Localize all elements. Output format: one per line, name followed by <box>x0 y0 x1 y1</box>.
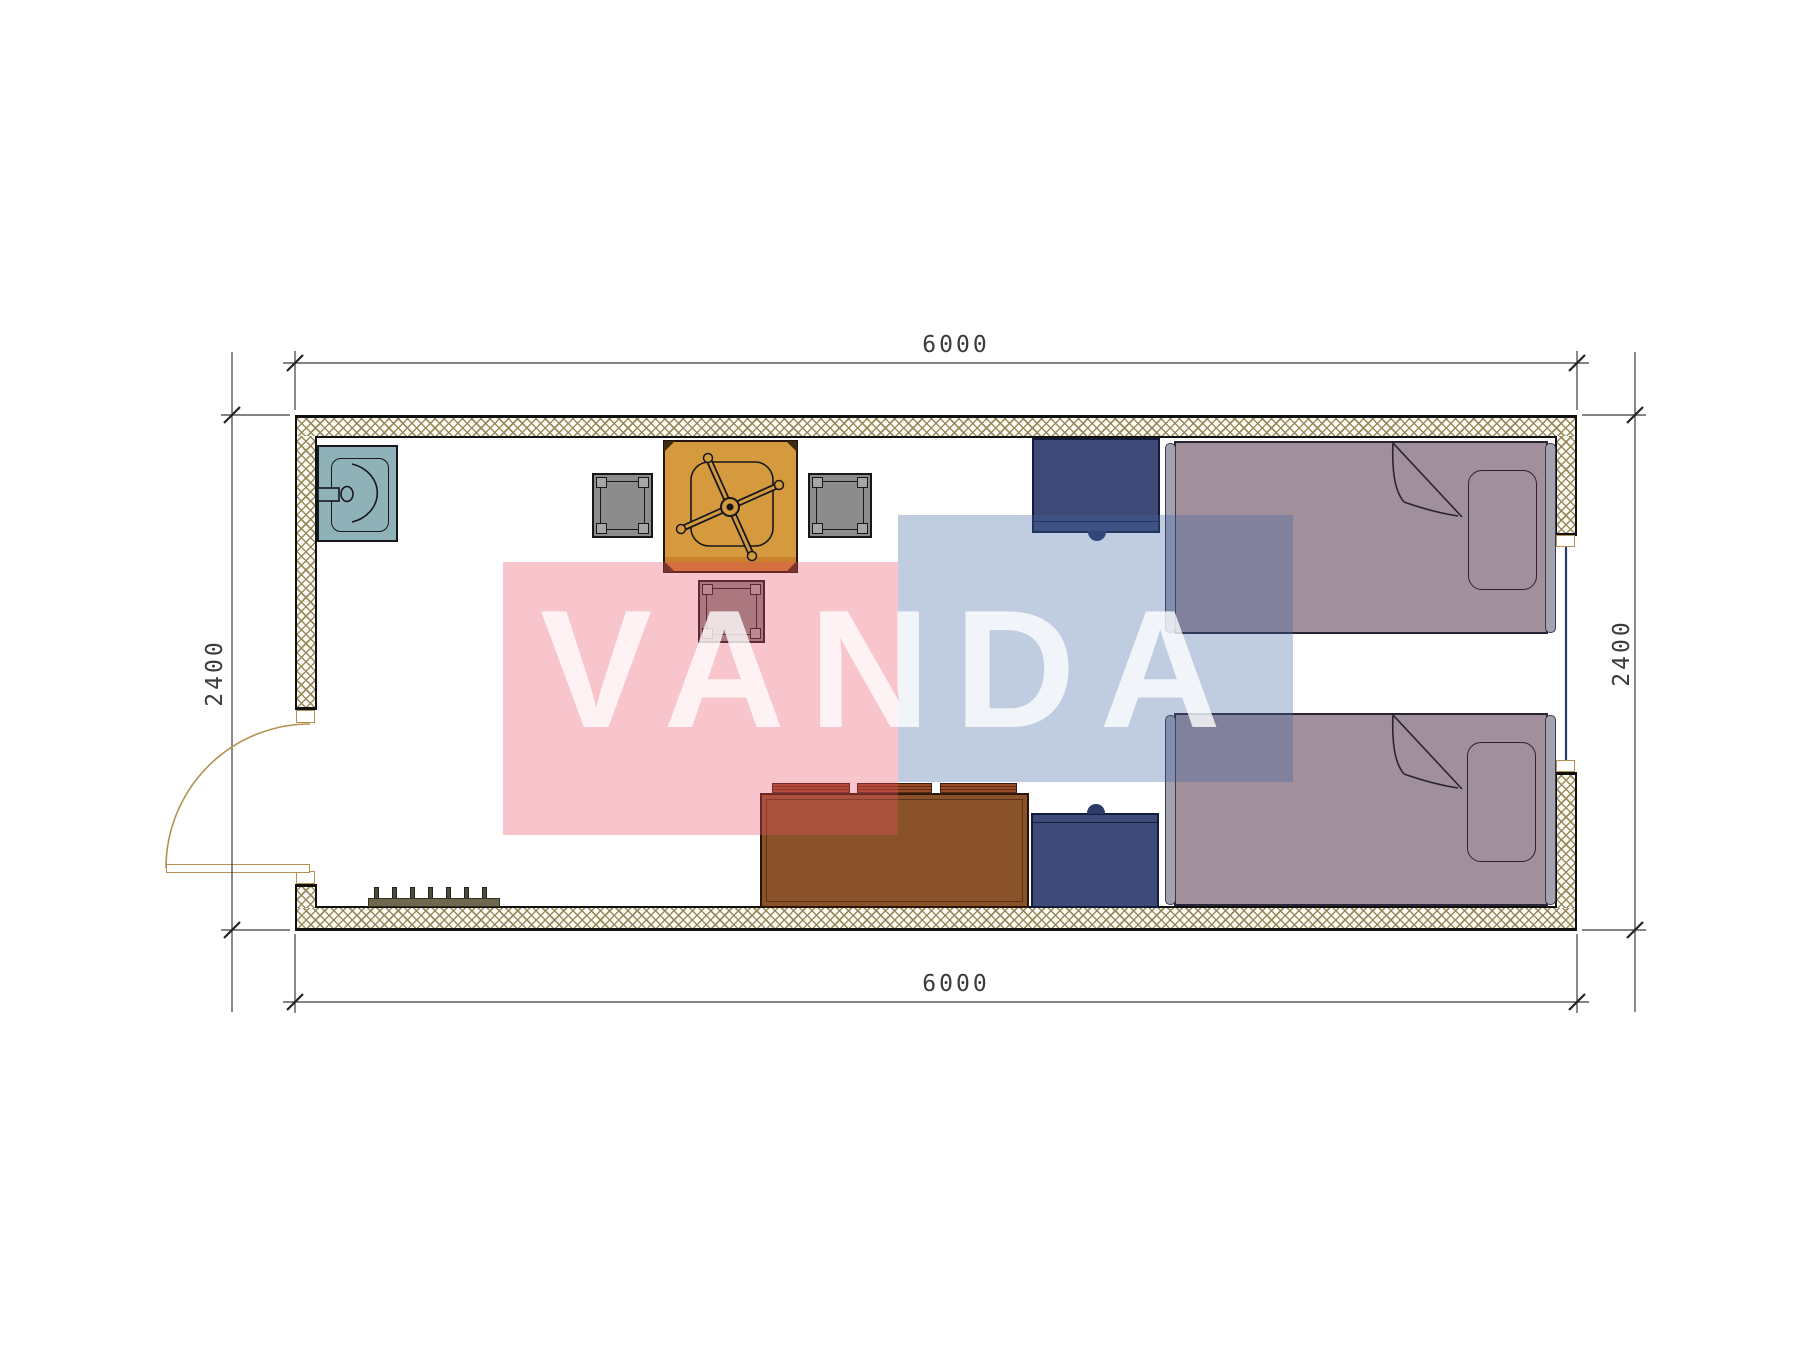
pillow-icon <box>1467 742 1536 862</box>
stool-left <box>592 473 653 538</box>
window-jamb-bottom <box>1556 760 1575 772</box>
nightstand-bottom <box>1031 813 1159 908</box>
coat-hooks-icon <box>368 898 500 907</box>
floor-plan-canvas: 6000 6000 2400 2400 <box>0 0 1800 1350</box>
dimension-right-label: 2400 <box>1609 593 1635 713</box>
bed-bottom-headboard <box>1545 715 1556 905</box>
dimension-bottom-label: 6000 <box>896 971 1016 997</box>
wall-door-stub <box>295 884 317 908</box>
sink-icon <box>317 445 398 542</box>
door-jamb-top <box>296 710 315 723</box>
door-leaf <box>166 864 310 873</box>
pillow-icon <box>1468 470 1537 590</box>
sink-basin <box>331 458 389 532</box>
sofa-cushion <box>940 783 1017 794</box>
wall-right-upper <box>1555 436 1577 536</box>
window-jamb-top <box>1556 535 1575 547</box>
wall-top <box>295 415 1577 438</box>
dimension-left-label: 2400 <box>202 613 228 733</box>
wall-bottom <box>295 906 1577 931</box>
stool-right <box>808 473 872 538</box>
nightstand-knob <box>1087 804 1105 814</box>
dimension-top-label: 6000 <box>896 332 1016 358</box>
bed-top-headboard <box>1545 443 1556 633</box>
watermark-text: VANDA <box>540 585 1280 753</box>
door-swing-icon <box>166 724 310 868</box>
dining-table <box>663 440 798 573</box>
wall-left <box>295 436 317 710</box>
wall-right-lower <box>1555 772 1577 908</box>
